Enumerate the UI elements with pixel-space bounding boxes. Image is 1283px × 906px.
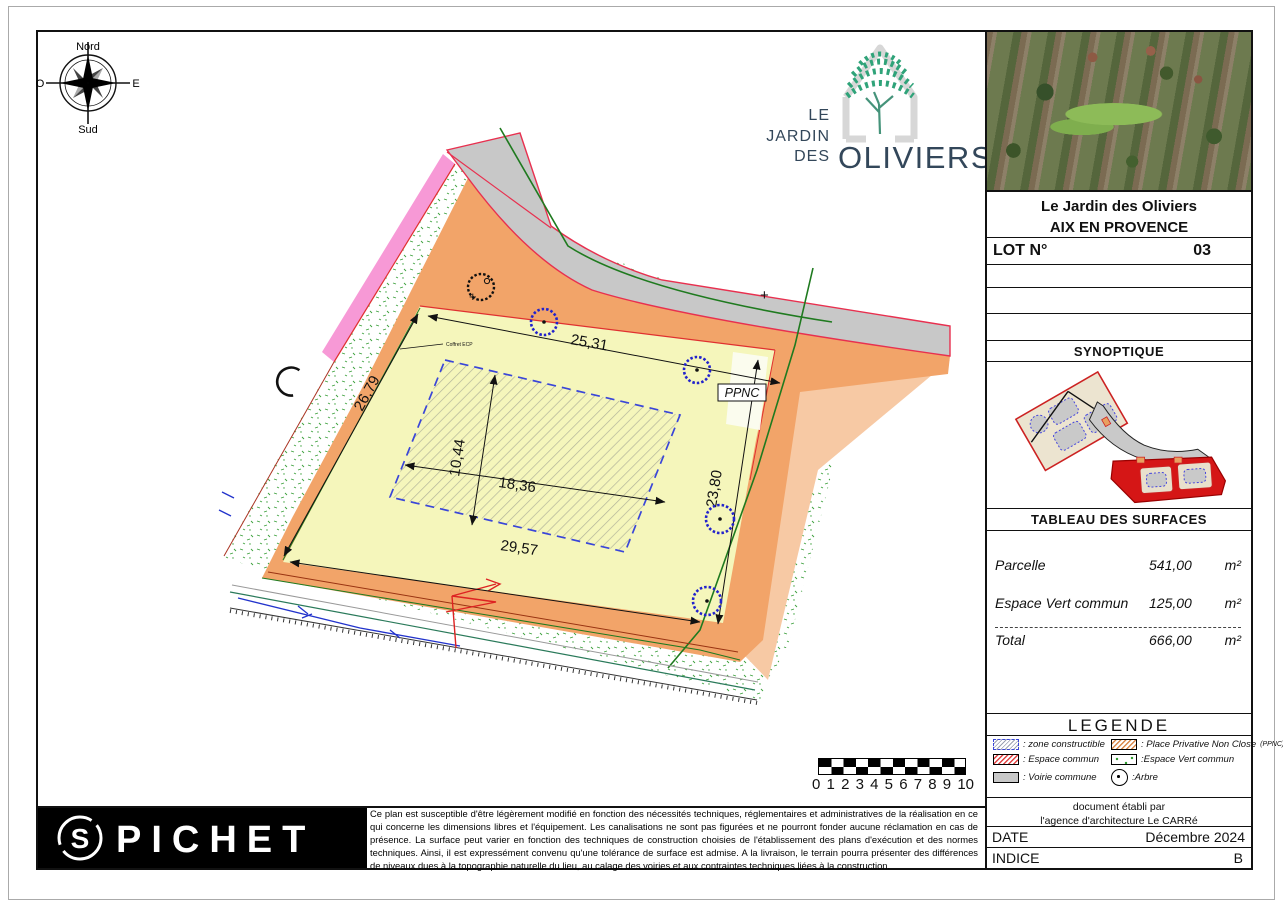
svg-text:Coffret ECP: Coffret ECP bbox=[446, 342, 473, 348]
date-label: DATE bbox=[992, 829, 1028, 845]
compass-rose: Nord Sud O E bbox=[36, 41, 140, 136]
ppnc-swatch-icon bbox=[1111, 739, 1137, 750]
surfaces-table: Parcelle 541,00 m² Espace Vert commun 12… bbox=[987, 531, 1251, 714]
compass-north-label: Nord bbox=[76, 41, 100, 53]
total-unit: m² bbox=[1225, 632, 1241, 648]
project-name: Le Jardin des Oliviers bbox=[987, 196, 1251, 217]
scale-tick: 6 bbox=[899, 776, 907, 793]
pichet-logo: S PICHET bbox=[38, 808, 367, 868]
scale-tick: 7 bbox=[914, 776, 922, 793]
table-row: Parcelle 541,00 m² bbox=[995, 557, 1241, 573]
svg-text:S: S bbox=[71, 823, 90, 854]
espace-vert-swatch-icon bbox=[1111, 754, 1137, 765]
indice-value: B bbox=[1234, 850, 1243, 866]
synoptique-selected-lot bbox=[1111, 457, 1225, 502]
surface-value: 125,00 bbox=[1149, 595, 1192, 611]
legend: : zone constructible : Place Privative N… bbox=[987, 736, 1251, 798]
scale-tick: 1 bbox=[827, 776, 835, 793]
svg-text:+: + bbox=[469, 289, 477, 304]
scale-tick: 2 bbox=[841, 776, 849, 793]
table-row-total: Total 666,00 m² bbox=[995, 632, 1241, 648]
surfaces-header: TABLEAU DES SURFACES bbox=[987, 509, 1251, 531]
zone-constructible-swatch-icon bbox=[993, 739, 1019, 750]
synoptique-map bbox=[987, 362, 1251, 509]
site-plan-drawing: Nord Sud O E bbox=[36, 30, 985, 806]
credit-block: document établi par l'agence d'architect… bbox=[987, 798, 1251, 827]
legend-item-zone-constructible: : zone constructible bbox=[993, 739, 1111, 750]
scale-tick: 9 bbox=[943, 776, 951, 793]
legend-item-espace-commun: : Espace commun bbox=[993, 754, 1111, 765]
scale-tick: 8 bbox=[928, 776, 936, 793]
olive-tree-icon bbox=[847, 54, 913, 134]
plan-sheet: Nord Sud O E bbox=[0, 0, 1283, 906]
lot-row: LOT N° 03 bbox=[987, 238, 1251, 265]
total-separator bbox=[995, 627, 1241, 628]
legend-item-espace-vert: :Espace Vert commun bbox=[1111, 754, 1283, 765]
arbre-icon bbox=[1111, 769, 1128, 786]
pichet-wordmark: PICHET bbox=[116, 819, 315, 861]
scale-tick: 10 bbox=[957, 776, 974, 793]
project-city: AIX EN PROVENCE bbox=[987, 217, 1251, 238]
title-block-panel: Le Jardin des Oliviers AIX EN PROVENCE L… bbox=[985, 30, 1253, 870]
lot-number: 03 bbox=[1193, 242, 1211, 260]
empty-row bbox=[987, 265, 1251, 288]
legend-item-arbre: :Arbre bbox=[1111, 769, 1283, 786]
voirie-swatch-icon bbox=[993, 772, 1019, 783]
logo-jardin: JARDIN bbox=[766, 128, 830, 145]
empty-row bbox=[987, 288, 1251, 314]
scale-bar bbox=[818, 758, 966, 775]
scale-tick: 3 bbox=[856, 776, 864, 793]
c-mark bbox=[274, 365, 299, 397]
surface-label: Parcelle bbox=[995, 557, 1046, 573]
svg-text:PPNC: PPNC bbox=[725, 386, 761, 400]
synoptique-header: SYNOPTIQUE bbox=[987, 341, 1251, 362]
lot-label: LOT N° bbox=[993, 242, 1047, 260]
pichet-s-icon: S bbox=[59, 817, 101, 859]
espace-commun-swatch-icon bbox=[993, 754, 1019, 765]
jardin-oliviers-logo: LE JARDIN DES OLIVIERS bbox=[766, 48, 985, 175]
logo-oliviers: OLIVIERS bbox=[838, 140, 985, 175]
logo-le: LE bbox=[808, 107, 830, 124]
legend-header: LEGENDE bbox=[987, 713, 1251, 736]
aerial-photo bbox=[987, 32, 1251, 192]
table-row: Espace Vert commun 125,00 m² bbox=[995, 595, 1241, 611]
disclaimer-text: Ce plan est susceptible d'être légèremen… bbox=[370, 808, 978, 868]
surface-unit: m² bbox=[1225, 557, 1241, 573]
scale-tick: 5 bbox=[885, 776, 893, 793]
date-value: Décembre 2024 bbox=[1145, 829, 1245, 845]
scale-tick: 4 bbox=[870, 776, 878, 793]
indice-row: INDICE B bbox=[987, 848, 1251, 867]
compass-west-label: O bbox=[36, 78, 45, 90]
surface-value: 541,00 bbox=[1149, 557, 1192, 573]
scale-tick: 0 bbox=[812, 776, 820, 793]
total-label: Total bbox=[995, 632, 1025, 648]
plus-marker-road: + bbox=[760, 287, 769, 304]
compass-east-label: E bbox=[132, 78, 139, 90]
total-value: 666,00 bbox=[1149, 632, 1192, 648]
empty-row bbox=[987, 314, 1251, 341]
indice-label: INDICE bbox=[992, 850, 1039, 866]
legend-item-voirie: : Voirie commune bbox=[993, 769, 1111, 786]
ppnc-label: PPNC bbox=[718, 384, 766, 401]
project-title-block: Le Jardin des Oliviers AIX EN PROVENCE bbox=[987, 192, 1251, 238]
scale-bar-numbers: 0 1 2 3 4 5 6 7 8 9 10 bbox=[812, 776, 974, 793]
surface-unit: m² bbox=[1225, 595, 1241, 611]
surface-label: Espace Vert commun bbox=[995, 595, 1128, 611]
legend-item-ppnc: : Place Privative Non Close (PPNC) bbox=[1111, 739, 1283, 750]
date-row: DATE Décembre 2024 bbox=[987, 827, 1251, 848]
compass-south-label: Sud bbox=[78, 124, 98, 136]
logo-des: DES bbox=[794, 148, 830, 165]
